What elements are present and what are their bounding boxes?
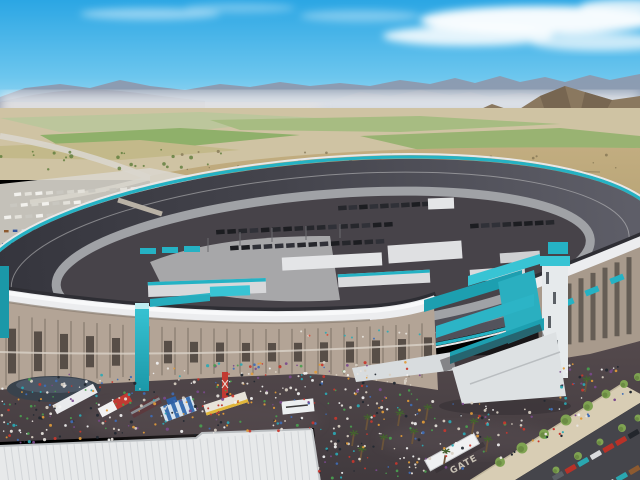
person-dot — [304, 386, 305, 387]
person-dot — [410, 404, 413, 407]
person-dot — [550, 408, 553, 411]
person-dot — [431, 400, 434, 403]
person-dot — [70, 417, 72, 419]
person-dot — [186, 401, 188, 403]
hauler — [328, 224, 337, 229]
person-dot — [251, 373, 254, 376]
person-dot — [124, 397, 127, 400]
person-dot — [192, 416, 194, 418]
person-dot — [154, 423, 156, 425]
person-dot — [213, 432, 214, 433]
person-dot — [389, 374, 391, 376]
person-dot — [165, 413, 167, 415]
person-dot — [95, 395, 97, 397]
shrub — [304, 151, 306, 153]
person-dot — [191, 383, 192, 384]
person-dot — [416, 461, 418, 463]
person-dot — [28, 378, 31, 381]
person-dot — [221, 398, 224, 401]
person-dot — [328, 403, 330, 405]
person-dot — [178, 379, 179, 380]
person-dot — [336, 374, 338, 376]
person-dot — [357, 445, 359, 447]
person-dot — [469, 444, 471, 446]
person-dot — [369, 396, 371, 398]
person-dot — [407, 400, 409, 402]
person-dot — [265, 391, 268, 394]
person-dot — [334, 445, 337, 448]
person-dot — [314, 371, 317, 374]
person-dot — [366, 375, 368, 377]
rv — [36, 214, 43, 218]
person-dot — [333, 427, 335, 429]
structure-opening — [34, 331, 42, 371]
person-dot — [587, 367, 590, 370]
vendor-person — [202, 405, 204, 407]
person-dot — [297, 392, 300, 395]
person-dot — [343, 370, 346, 373]
person-dot — [488, 413, 490, 415]
rv — [25, 214, 32, 218]
person-dot — [387, 466, 389, 468]
person-dot — [52, 396, 54, 398]
person-dot — [239, 421, 241, 423]
shrub — [536, 155, 538, 157]
person-dot — [355, 364, 358, 367]
person-dot — [59, 435, 61, 437]
field-tree — [162, 162, 166, 166]
hauler — [481, 223, 490, 228]
structure-opening — [86, 336, 94, 367]
person-dot — [194, 405, 197, 408]
tree-shade — [603, 393, 608, 398]
hauler — [216, 229, 225, 234]
person-dot — [54, 437, 57, 440]
tree-shade — [562, 418, 568, 424]
person-dot — [15, 403, 17, 405]
vendor-person — [216, 413, 218, 415]
person-dot — [16, 425, 18, 427]
person-dot — [484, 416, 486, 418]
tree-shade — [584, 404, 590, 410]
person-dot — [297, 375, 299, 377]
hauler — [370, 204, 379, 209]
tree-shade — [597, 441, 601, 445]
hauler — [241, 245, 250, 250]
person-dot — [410, 384, 412, 386]
person-dot — [346, 364, 349, 367]
person-dot — [425, 458, 427, 460]
person-dot — [289, 375, 292, 378]
person-dot — [32, 391, 33, 392]
person-dot — [364, 467, 366, 469]
hauler — [502, 222, 511, 227]
hauler — [308, 242, 317, 247]
hauler — [373, 222, 382, 227]
rv — [25, 192, 32, 196]
person-dot — [150, 415, 153, 418]
person-dot — [38, 400, 40, 402]
person-dot — [71, 385, 73, 387]
person-dot — [483, 451, 485, 453]
person-dot — [347, 374, 349, 376]
person-dot — [38, 383, 41, 386]
person-dot — [346, 442, 348, 444]
person-dot — [337, 440, 340, 443]
shrub — [187, 169, 188, 170]
person-dot — [79, 386, 80, 387]
person-dot — [282, 387, 284, 389]
person-dot — [617, 366, 619, 368]
person-dot — [99, 386, 101, 388]
person-dot — [223, 426, 225, 428]
person-dot — [411, 472, 413, 474]
person-dot — [21, 391, 23, 393]
person-dot — [129, 402, 131, 404]
person-dot — [10, 430, 13, 433]
person-dot — [455, 442, 458, 445]
person-dot — [96, 436, 99, 439]
pedestrian — [560, 435, 562, 437]
pedestrian — [538, 440, 540, 442]
person-dot — [290, 416, 292, 418]
person-dot — [3, 421, 5, 423]
person-dot — [117, 379, 119, 381]
structure-opening — [8, 329, 16, 374]
person-dot — [296, 424, 299, 427]
person-dot — [479, 403, 480, 404]
person-dot — [269, 367, 271, 369]
shrub — [532, 157, 535, 160]
person-dot — [260, 391, 262, 393]
field-tree — [33, 154, 35, 156]
person-dot — [40, 398, 42, 400]
person-dot — [100, 374, 103, 377]
person-dot — [128, 393, 131, 396]
pedestrian — [613, 398, 616, 401]
suite-dot — [419, 333, 421, 335]
person-dot — [184, 370, 185, 371]
field-tree — [121, 152, 123, 154]
person-dot — [217, 424, 219, 426]
person-dot — [27, 432, 30, 435]
person-dot — [411, 393, 413, 395]
parked-car — [13, 230, 18, 232]
person-dot — [24, 441, 26, 443]
person-dot — [68, 391, 70, 393]
person-dot — [309, 427, 310, 428]
person-dot — [130, 376, 132, 378]
person-dot — [445, 466, 448, 469]
person-dot — [325, 393, 328, 396]
person-dot — [216, 386, 218, 388]
person-dot — [253, 381, 255, 383]
person-dot — [227, 421, 230, 424]
person-dot — [580, 382, 582, 384]
person-dot — [378, 424, 380, 426]
person-dot — [8, 434, 11, 437]
person-dot — [250, 397, 253, 400]
person-dot — [488, 419, 490, 421]
person-dot — [379, 433, 381, 435]
person-dot — [422, 431, 425, 434]
person-dot — [409, 466, 411, 468]
raceway-rendering: GATE — [0, 0, 640, 480]
person-dot — [263, 403, 265, 405]
person-dot — [18, 429, 20, 431]
person-dot — [422, 445, 424, 447]
rv — [35, 191, 42, 195]
person-dot — [333, 432, 336, 435]
person-dot — [564, 402, 567, 405]
person-dot — [46, 429, 48, 431]
person-dot — [25, 393, 27, 395]
person-dot — [209, 428, 211, 430]
person-dot — [329, 371, 330, 372]
person-dot — [296, 364, 298, 366]
person-dot — [38, 416, 41, 419]
rv — [15, 215, 22, 219]
person-dot — [204, 401, 205, 402]
rv — [109, 188, 116, 192]
person-dot — [336, 462, 339, 465]
person-dot — [44, 384, 47, 387]
person-dot — [241, 372, 243, 374]
person-dot — [118, 397, 120, 399]
field-tree — [116, 156, 120, 160]
person-dot — [424, 470, 426, 472]
person-dot — [520, 427, 521, 428]
person-dot — [176, 412, 178, 414]
person-dot — [58, 405, 61, 408]
person-dot — [418, 438, 421, 441]
person-dot — [375, 469, 377, 471]
person-dot — [303, 398, 305, 400]
person-dot — [122, 432, 123, 433]
person-dot — [406, 374, 408, 376]
person-dot — [330, 455, 332, 457]
person-dot — [31, 436, 33, 438]
person-dot — [115, 403, 117, 405]
person-dot — [348, 456, 350, 458]
person-dot — [114, 432, 117, 435]
person-dot — [601, 369, 603, 371]
person-dot — [605, 369, 608, 372]
person-dot — [361, 385, 363, 387]
person-dot — [397, 407, 399, 409]
person-dot — [173, 400, 175, 402]
person-dot — [196, 390, 199, 393]
person-dot — [419, 374, 421, 376]
hauler — [384, 222, 393, 227]
person-dot — [2, 401, 3, 402]
parked-car — [4, 230, 9, 232]
rv — [67, 190, 74, 194]
person-dot — [43, 438, 46, 441]
person-dot — [277, 422, 279, 424]
person-dot — [189, 409, 192, 412]
person-dot — [249, 430, 252, 433]
person-dot — [153, 399, 155, 401]
person-dot — [42, 416, 45, 419]
structure-opening — [112, 338, 120, 366]
person-dot — [583, 383, 586, 386]
field-tree — [69, 154, 73, 158]
hauler — [261, 227, 270, 232]
person-dot — [265, 374, 267, 376]
field-tree — [68, 151, 71, 154]
hauler — [492, 222, 501, 227]
pedestrian — [576, 425, 578, 427]
person-dot — [343, 408, 345, 410]
person-dot — [285, 388, 288, 391]
person-dot — [261, 386, 263, 388]
person-dot — [440, 458, 442, 460]
person-dot — [334, 417, 337, 420]
person-dot — [257, 377, 259, 379]
person-dot — [46, 391, 48, 393]
person-dot — [311, 421, 314, 424]
person-dot — [378, 407, 380, 409]
person-dot — [272, 404, 273, 405]
person-dot — [353, 450, 355, 452]
person-dot — [234, 401, 237, 404]
hauler — [524, 221, 533, 226]
hauler — [376, 239, 385, 244]
person-dot — [322, 375, 325, 378]
person-dot — [111, 438, 114, 441]
hauler — [252, 244, 261, 249]
shrub — [593, 162, 595, 164]
person-dot — [356, 390, 359, 393]
person-dot — [568, 364, 570, 366]
field-tree — [63, 159, 65, 161]
vendor-person — [222, 413, 224, 415]
person-dot — [17, 439, 19, 441]
person-dot — [314, 402, 316, 404]
structure-opening — [346, 342, 354, 363]
person-dot — [289, 386, 292, 389]
person-dot — [331, 476, 334, 479]
person-dot — [143, 392, 146, 395]
rv — [99, 188, 106, 192]
person-dot — [28, 440, 31, 443]
person-dot — [338, 425, 341, 428]
tree-shade — [635, 376, 639, 380]
person-dot — [445, 455, 447, 457]
person-dot — [321, 381, 323, 383]
person-dot — [428, 457, 431, 460]
hauler — [364, 239, 373, 244]
person-dot — [366, 377, 368, 379]
person-dot — [403, 457, 405, 459]
person-dot — [398, 409, 400, 411]
person-dot — [143, 399, 146, 402]
person-dot — [478, 415, 481, 418]
hauler — [342, 240, 351, 245]
person-dot — [394, 448, 396, 450]
person-dot — [34, 405, 36, 407]
hauler — [306, 225, 315, 230]
person-dot — [400, 435, 402, 437]
suite-dot — [344, 335, 346, 337]
person-dot — [186, 403, 188, 405]
person-dot — [443, 429, 446, 432]
person-dot — [347, 378, 349, 380]
person-dot — [414, 438, 416, 440]
person-dot — [6, 436, 8, 438]
field-tree — [47, 168, 49, 170]
person-dot — [41, 432, 44, 435]
person-dot — [333, 389, 335, 391]
person-dot — [183, 420, 185, 422]
person-dot — [404, 361, 407, 364]
person-dot — [7, 423, 9, 425]
person-dot — [153, 391, 155, 393]
field-tree — [207, 163, 209, 165]
person-dot — [163, 397, 166, 400]
field-tree — [160, 149, 162, 151]
person-dot — [440, 443, 442, 445]
person-dot — [131, 392, 133, 394]
person-dot — [96, 402, 98, 404]
person-dot — [431, 429, 433, 431]
rv — [46, 191, 53, 195]
person-dot — [479, 436, 481, 438]
infield-stand-roof — [162, 247, 178, 253]
person-dot — [416, 399, 418, 401]
person-dot — [30, 405, 33, 408]
person-dot — [285, 362, 288, 365]
structure-opening — [294, 343, 302, 362]
pedestrian — [577, 413, 580, 416]
person-dot — [379, 388, 382, 391]
field-tree — [143, 165, 145, 167]
person-dot — [153, 373, 155, 375]
person-dot — [357, 404, 360, 407]
rv — [21, 203, 28, 207]
person-dot — [578, 376, 581, 379]
person-dot — [9, 403, 11, 405]
person-dot — [156, 362, 159, 365]
structure-opening — [372, 340, 380, 363]
person-dot — [405, 415, 408, 418]
field-tree — [32, 151, 34, 153]
field-tree — [166, 165, 169, 168]
person-dot — [32, 420, 34, 422]
person-dot — [216, 394, 219, 397]
person-dot — [434, 418, 436, 420]
person-dot — [463, 432, 466, 435]
rv — [4, 215, 11, 219]
person-dot — [341, 404, 343, 406]
person-dot — [277, 429, 280, 432]
person-dot — [362, 401, 364, 403]
person-dot — [322, 455, 325, 458]
hauler — [535, 220, 544, 225]
suite-dot — [325, 332, 327, 334]
pedestrian — [559, 433, 561, 435]
person-dot — [325, 413, 327, 415]
person-dot — [70, 398, 72, 400]
person-dot — [470, 402, 473, 405]
person-dot — [108, 438, 111, 441]
pedestrian — [500, 456, 503, 459]
person-dot — [295, 389, 297, 391]
pedestrian — [514, 451, 516, 453]
person-dot — [497, 434, 499, 436]
person-dot — [318, 470, 321, 473]
